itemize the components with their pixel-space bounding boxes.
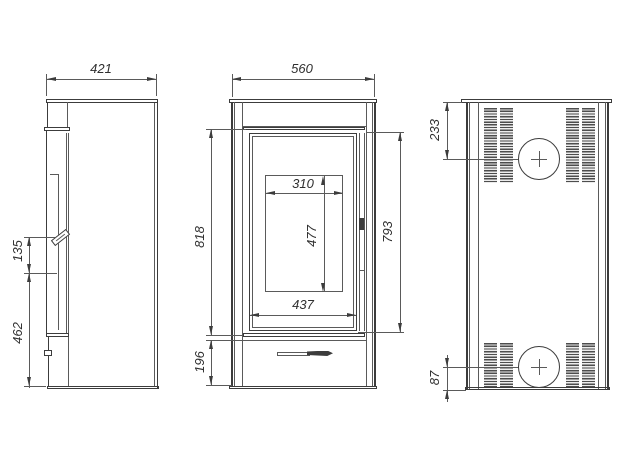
arrowhead	[445, 102, 449, 111]
left-outer-line	[466, 102, 468, 390]
right-inner-line	[598, 102, 599, 389]
arrowhead	[445, 390, 449, 399]
back-view: 233 87	[0, 0, 624, 460]
vent-grille-top-left-b	[500, 108, 513, 183]
left-outer-thin	[469, 102, 470, 389]
arrowhead	[445, 358, 449, 367]
vent-grille-top-right-a	[566, 108, 579, 183]
centre-mark-v	[539, 151, 540, 167]
right-outer-line	[607, 102, 609, 390]
dimension-label-flue-top: 233	[428, 113, 442, 147]
vent-grille-bottom-right-b	[582, 343, 595, 387]
arrowhead	[445, 150, 449, 159]
vent-grille-bottom-right-a	[566, 343, 579, 387]
drawing-canvas: 421 135 462	[0, 0, 624, 460]
vent-grille-top-left-a	[484, 108, 497, 183]
vent-grille-bottom-left-b	[500, 343, 513, 387]
left-inner-line	[478, 102, 479, 389]
centre-mark-v	[539, 359, 540, 375]
top-plate	[461, 99, 612, 103]
right-outer-thin	[605, 102, 606, 389]
vent-grille-top-right-b	[582, 108, 595, 183]
dimension-label-flue-bottom: 87	[428, 361, 442, 395]
vent-grille-bottom-left-a	[484, 343, 497, 387]
